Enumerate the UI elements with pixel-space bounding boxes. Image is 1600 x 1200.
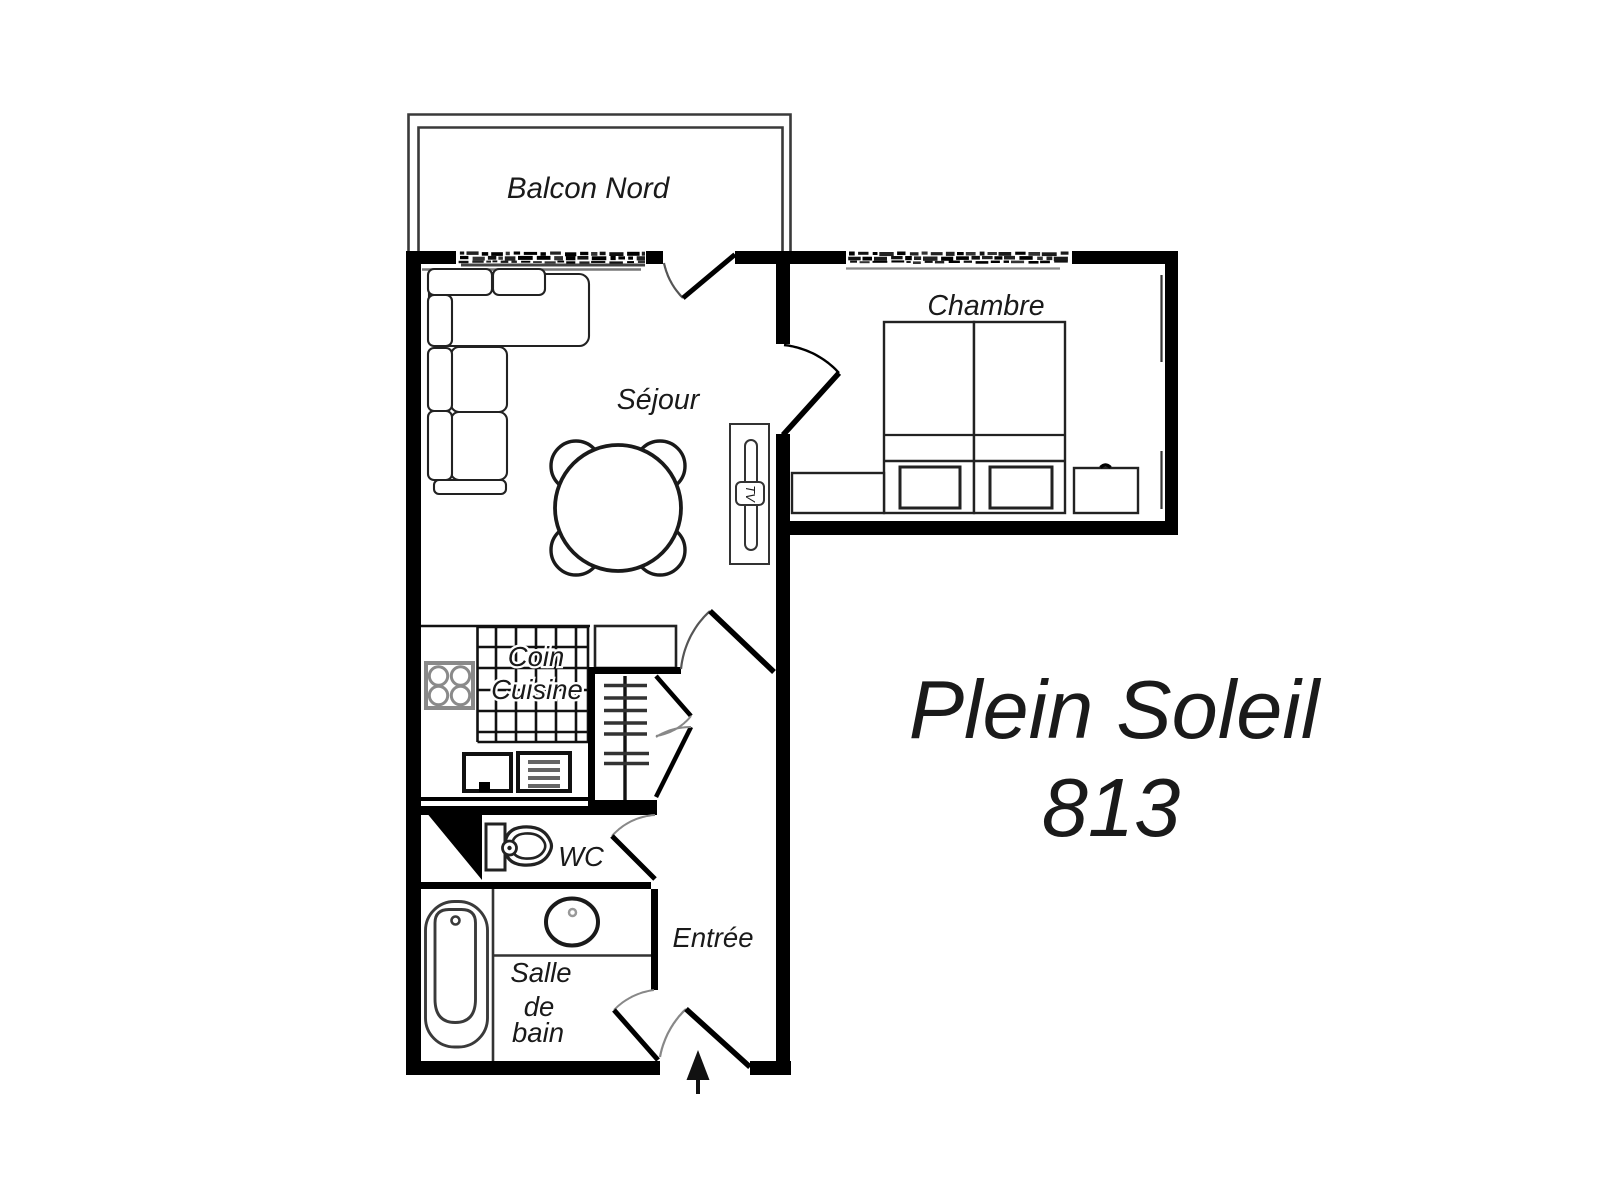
svg-text:WC: WC <box>558 841 604 872</box>
svg-text:TV: TV <box>743 485 758 503</box>
svg-text:Plein Soleil: Plein Soleil <box>909 663 1322 756</box>
svg-text:Chambre: Chambre <box>927 290 1044 322</box>
svg-text:813: 813 <box>1042 761 1180 854</box>
svg-text:Cuisine: Cuisine <box>491 674 583 705</box>
svg-text:bain: bain <box>512 1017 564 1048</box>
svg-text:Séjour: Séjour <box>617 384 701 416</box>
svg-text:Balcon Nord: Balcon Nord <box>507 172 671 205</box>
svg-text:Salle: Salle <box>510 957 571 988</box>
svg-text:Coin: Coin <box>508 641 565 672</box>
svg-text:Entrée: Entrée <box>672 922 753 953</box>
